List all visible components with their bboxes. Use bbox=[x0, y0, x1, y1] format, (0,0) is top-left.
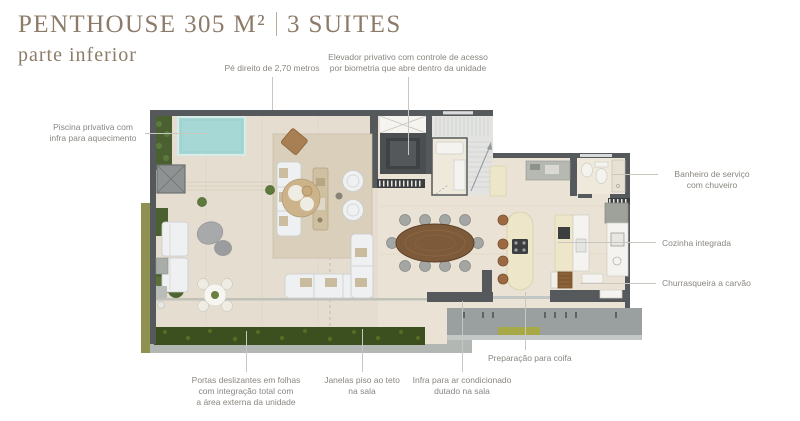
callout-hood: Preparação para coifa bbox=[488, 353, 572, 364]
leader-line-kitchen bbox=[558, 242, 656, 243]
cooktop-counter bbox=[555, 215, 573, 271]
leader-line-barbecue bbox=[580, 283, 656, 284]
callout-ceiling: Pé direito de 2,70 metros bbox=[225, 63, 320, 74]
hood-prep-planter bbox=[498, 327, 540, 335]
equipment-box bbox=[157, 165, 185, 193]
hedge bbox=[154, 327, 425, 345]
leader-line-elevator bbox=[408, 77, 409, 155]
callout-service-bathroom: Banheiro de serviço com chuveiro bbox=[674, 169, 749, 191]
armchair bbox=[343, 200, 364, 221]
callout-sliding-doors: Portas deslizantes em folhas com integra… bbox=[192, 375, 301, 408]
title-main: PENTHOUSE 305 M² bbox=[18, 11, 266, 38]
leader-line-windows bbox=[362, 329, 363, 372]
bathroom-sink bbox=[582, 163, 593, 177]
kitchen-sink bbox=[576, 239, 586, 252]
page-title: PENTHOUSE 305 M²3 SUITES bbox=[18, 10, 402, 40]
outdoor-chair bbox=[162, 222, 188, 256]
leader-line-pool bbox=[145, 133, 207, 134]
window-slit bbox=[580, 154, 612, 157]
window-slit bbox=[443, 111, 473, 114]
fridge bbox=[605, 203, 628, 223]
floor-plan-canvas bbox=[140, 108, 642, 356]
potted-plant bbox=[266, 186, 275, 195]
callout-pool: Piscina privativa com infra para aquecim… bbox=[50, 122, 137, 144]
callout-hvac: Infra para ar condicionado dutado na sal… bbox=[413, 375, 512, 397]
right-counter bbox=[607, 223, 628, 276]
page: PENTHOUSE 305 M²3 SUITES parte inferior bbox=[0, 0, 800, 421]
callout-elevator: Elevador privativo com controle de acess… bbox=[328, 52, 488, 74]
leader-line-hood bbox=[525, 292, 526, 350]
toilet bbox=[596, 169, 607, 184]
armchair bbox=[343, 171, 364, 192]
oven bbox=[611, 233, 624, 246]
leader-line-hvac bbox=[462, 301, 463, 372]
callout-windows: Janelas piso ao teto na sala bbox=[324, 375, 400, 397]
title-suites: 3 SUITES bbox=[287, 11, 402, 38]
balcony bbox=[447, 308, 642, 340]
side-grass-strip bbox=[141, 203, 150, 353]
bean-bag bbox=[214, 240, 232, 256]
potted-plant bbox=[198, 198, 207, 207]
leader-line-sliding-doors bbox=[246, 331, 247, 372]
callout-barbecue: Churrasqueira a carvão bbox=[662, 278, 751, 289]
leader-line-ceiling bbox=[272, 77, 273, 110]
powder-room bbox=[432, 138, 467, 195]
callout-kitchen: Cozinha integrada bbox=[662, 238, 731, 249]
leader-line-service-bathroom bbox=[612, 174, 658, 175]
bar-cabinet bbox=[490, 166, 506, 196]
title-divider bbox=[276, 12, 277, 36]
pool bbox=[178, 117, 245, 155]
side-table bbox=[336, 193, 343, 200]
